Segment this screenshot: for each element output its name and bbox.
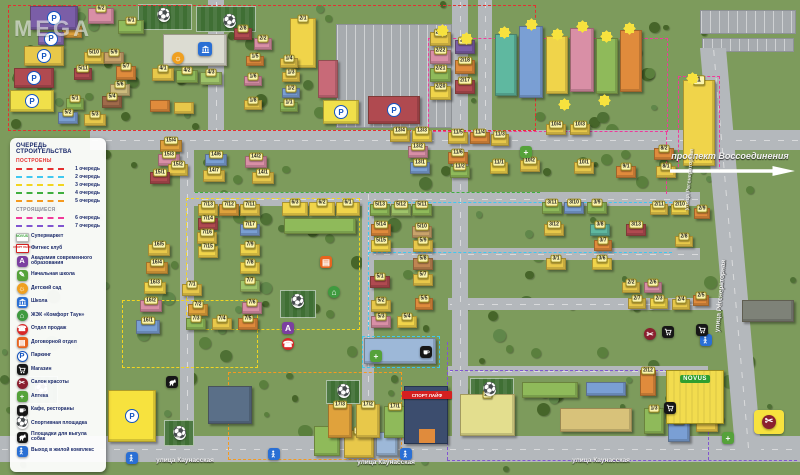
building-2-6: 2/6 [644, 282, 662, 293]
legend-phase-row: 7 очередь [16, 222, 100, 230]
building-label: 3/12 [547, 221, 561, 229]
building-5-2: 5/2 [58, 112, 78, 124]
parking-icon: P [17, 351, 28, 362]
building-label: 2/2 [626, 279, 637, 287]
tree [233, 175, 242, 184]
tree [262, 301, 268, 307]
building-7-3: 7/3 [186, 318, 206, 330]
pharmacy-icon: + [17, 391, 28, 402]
legend-amenity-label: Начальная школа [31, 272, 75, 278]
building-9-1: 9/1 [616, 166, 636, 178]
building-15-1: 15/1 [150, 172, 170, 184]
building-3-12: 3/12 [544, 224, 564, 236]
tree [525, 271, 533, 279]
exit-icon [126, 452, 138, 464]
building [742, 300, 794, 322]
tree [325, 15, 331, 21]
building-3-7: 3/7 [594, 240, 612, 251]
parking-icon: P [387, 103, 401, 117]
building-16-5: 16/5 [148, 244, 170, 256]
tree [259, 380, 268, 389]
novus-icon: NOVUS [16, 233, 29, 242]
academy-icon: А [17, 256, 28, 267]
building-5-3: 5/3 [371, 316, 391, 328]
building-label: 17/1 [388, 403, 402, 411]
legend-amenity-label: Магазин [31, 367, 52, 373]
building-label: 2/12 [641, 367, 655, 375]
building-3-9: 3/9 [587, 202, 607, 214]
building-label: 2/3 [654, 295, 665, 303]
building-label: 13/2 [411, 143, 425, 151]
building-label: 5/7 [121, 63, 132, 71]
legend-phases-constructing: 6 очередь7 очередь [16, 214, 100, 230]
legend-amenity-icon-cell [16, 405, 28, 416]
legend-phases-built: 1 очередь2 очередь3 очередь4 очередь5 оч… [16, 165, 100, 205]
building-label: 3/8 [595, 221, 606, 229]
building-label: 1/2 [286, 85, 297, 93]
building-5-8: 5/8 [413, 258, 433, 270]
building-5-3: 5/3 [84, 114, 106, 126]
kindergarten-icon: ☼ [172, 52, 184, 64]
building-11-5: 11/5 [448, 132, 468, 144]
starburst-badge [578, 22, 587, 31]
building-6-1: 6/1 [118, 20, 144, 34]
building-6-3: 6/3 [282, 202, 308, 216]
tree [85, 93, 93, 101]
building-label: 16/1 [141, 317, 155, 325]
tree [121, 112, 130, 121]
building-label: 4/3 [206, 69, 217, 77]
building-label: 8/1 [661, 163, 672, 171]
legend-amenity-row: ☎Отдел продаж [16, 324, 100, 335]
pharmacy-icon: + [520, 146, 532, 158]
parking-icon: P [125, 409, 139, 423]
legend-amenity-row: Кафе, рестораны [16, 405, 100, 416]
building-1-1: 1/1 [280, 102, 298, 112]
building-2-22: 2/22 [430, 50, 451, 64]
phase-line [16, 200, 64, 202]
legend-amenity-row: ✂Салон красоты [16, 378, 100, 389]
contract-icon: ▤ [320, 256, 332, 268]
building-label: 11/1 [492, 159, 505, 167]
building-17-1: 17/1 [384, 406, 406, 438]
building-label: 11/3 [493, 131, 506, 139]
building-label: 5/10 [415, 223, 429, 231]
building [586, 382, 626, 396]
building [284, 218, 356, 234]
building [150, 100, 170, 112]
building-label: 3/1 [551, 255, 562, 263]
building-label: 11/2 [453, 163, 466, 171]
building-label: 14/1 [256, 169, 270, 177]
building-2-20: 2/20 [430, 86, 451, 100]
shop-icon [662, 326, 674, 338]
legend-amenity-row: Площадки для выгула собак [16, 432, 100, 444]
street-label-kaunasska-3: улица Каунасская [556, 457, 646, 464]
building-label: 3/9 [592, 199, 603, 207]
building-label: 5/13 [373, 201, 387, 209]
building-label: 13/3 [415, 127, 429, 135]
building-label: 2/6 [648, 279, 659, 287]
building-label: 6/3 [290, 199, 301, 207]
street-label-kaunasska-2: улица Каунасская [341, 459, 431, 466]
legend-amenity-row: ☼Детский сад [16, 283, 100, 294]
building-label: 2/8 [238, 25, 249, 33]
tree [597, 347, 608, 358]
legend-amenity-icon-cell: NOVUS [16, 233, 28, 242]
building-3-10: 3/10 [564, 202, 584, 214]
legend-amenity-label: Отдел продаж [31, 326, 66, 332]
building-label: 7/11 [243, 201, 256, 209]
building [174, 102, 194, 114]
building-label: 2/4 [676, 296, 687, 304]
building-2-2: 2/2 [254, 38, 272, 50]
building [570, 28, 594, 92]
building-label: 7/13 [201, 201, 215, 209]
building-16-3: 16/3 [144, 282, 166, 294]
sales-office-icon: ☎ [17, 324, 28, 335]
building-6-1: 6/1 [336, 202, 360, 216]
legend-constructing-heading: СТРОЯЩИЕСЯ [16, 207, 100, 213]
sport-icon: ⚽ [174, 428, 186, 440]
school-icon [17, 297, 28, 308]
building [620, 30, 642, 92]
road-centerline [485, 2, 486, 130]
building-5-14: 5/14 [371, 224, 391, 236]
building-1-5: 1/5 [246, 56, 264, 66]
building-1-3: 1/3 [282, 72, 300, 82]
building-label: 11/4 [473, 129, 486, 137]
building-11-2: 11/2 [450, 166, 470, 178]
building-5-7: 5/7 [116, 66, 136, 80]
building-2-9: 2/9 [694, 208, 710, 219]
road [186, 192, 700, 206]
phase-line [16, 184, 64, 186]
building-14-7: 14/7 [203, 170, 225, 182]
building-2-2: 2/2 [622, 282, 640, 293]
sportlife-sign: СПОРТ ЛАЙФ [402, 391, 452, 399]
legend-amenity-icon-cell: ⚽ [16, 418, 28, 429]
tree [649, 22, 660, 33]
building-13-4: 13/4 [390, 130, 410, 142]
building-label: 16/2 [144, 297, 158, 305]
legend-amenity-icon-cell: P [16, 351, 28, 362]
building-label: 7/4 [217, 315, 228, 323]
building-label: 1/3 [649, 405, 660, 413]
building-10-3: 10/3 [570, 124, 590, 135]
building-label: 2/1 [298, 15, 309, 23]
road [478, 0, 492, 132]
building-3-11: 3/11 [542, 202, 562, 214]
building-label: 5/2 [63, 109, 74, 117]
building-11-4: 11/4 [470, 132, 490, 144]
building-13-2: 13/2 [408, 146, 428, 158]
building-label: 3/7 [598, 237, 609, 245]
starburst-badge [602, 32, 611, 41]
building-2-12: 2/12 [640, 370, 656, 396]
legend-amenities: NOVUSСупермаркетСПОРТ ЛАЙФФитнес клубААк… [16, 233, 100, 457]
building-label: 9/1 [621, 163, 632, 171]
building-1-6: 1/6 [244, 76, 262, 86]
tree [11, 119, 21, 129]
phase-label: 2 очередь [67, 174, 100, 180]
building-label: 2/17 [458, 77, 472, 85]
building-label: 15/4 [164, 137, 178, 145]
legend-amenity-row: PПаркинг [16, 351, 100, 362]
building-label: 5/4 [107, 93, 118, 101]
tree [2, 349, 8, 355]
tree [535, 112, 545, 122]
shop-icon [17, 364, 28, 375]
street-label-avenue: проспект Воссоединения [660, 151, 800, 161]
building-5-5: 5/5 [415, 298, 433, 310]
novus-sign: NOVUS [680, 375, 710, 383]
legend-amenity-icon-cell [16, 446, 28, 457]
tree [347, 346, 357, 356]
beauty2-icon: ✂ [754, 410, 784, 434]
starburst-badge [500, 28, 509, 37]
phase-label: 5 очередь [67, 198, 100, 204]
building-label: 5/3 [90, 111, 101, 119]
tree [506, 345, 513, 352]
building-10-2: 10/2 [520, 160, 540, 172]
building-11-3: 11/3 [491, 134, 509, 146]
tree [790, 277, 796, 283]
road-centerline [188, 199, 698, 200]
masterplan-map: 6/26/15/105/95/115/75/65/45/15/25/34/14/… [0, 0, 800, 475]
legend-amenity-label: Выход в жилой комплекс [31, 448, 94, 454]
legend-amenity-icon-cell: ✂ [16, 378, 28, 389]
building-label: 6/2 [96, 5, 107, 13]
building-label: 7/15 [201, 243, 215, 251]
building [208, 386, 252, 424]
building-5-1: 5/1 [370, 276, 390, 288]
sport-icon: ⚽ [224, 16, 236, 28]
legend-panel: ОЧЕРЕДЬ СТРОИТЕЛЬСТВА ПОСТРОЕНЫ 1 очеред… [10, 138, 106, 472]
building-label: 2/22 [434, 47, 448, 55]
building-label: 7/14 [201, 215, 215, 223]
building-5-13: 5/13 [370, 204, 390, 216]
building-5-12: 5/12 [391, 204, 411, 216]
building-1-2: 1/2 [282, 88, 300, 98]
building-7-6: 7/6 [242, 302, 262, 314]
exit-icon [268, 448, 280, 460]
building-label: 5/9 [418, 237, 429, 245]
legend-phase-row: 5 очередь [16, 197, 100, 205]
building-label: 1/5 [250, 53, 261, 61]
tree [663, 25, 669, 31]
building-7-15: 7/15 [198, 246, 218, 258]
legend-amenity-icon-cell: ✎ [16, 270, 28, 281]
building-label: 1/1 [284, 99, 295, 107]
legend-amenity-icon-cell: ☼ [16, 283, 28, 294]
phase-label: 1 очередь [67, 166, 100, 172]
building-label: 7/5 [243, 315, 254, 323]
sport-icon: ⚽ [158, 10, 170, 22]
building-label: 5/3 [376, 313, 387, 321]
building-2-7: 2/7 [628, 298, 646, 309]
building-5-4: 5/4 [102, 96, 122, 108]
building-label: 5/6 [115, 81, 126, 89]
starburst-badge [600, 96, 609, 105]
parking-icon: P [27, 71, 41, 85]
parking-building: P [368, 96, 420, 124]
building-5-4: 5/4 [397, 316, 417, 328]
legend-phase-row: 3 очередь [16, 181, 100, 189]
building-label: 2/11 [652, 201, 665, 209]
building-label: 15/2 [171, 161, 185, 169]
phase-label: 4 очередь [67, 190, 100, 196]
legend-phase-row: 4 очередь [16, 189, 100, 197]
building-label: 15/1 [153, 169, 167, 177]
parking-building: P [24, 46, 64, 66]
building-label: 5/2 [376, 297, 387, 305]
building-label: 1/3 [286, 69, 297, 77]
building-label: 14/6 [209, 151, 223, 159]
starburst-badge [553, 30, 562, 39]
legend-amenity-icon-cell: СПОРТ ЛАЙФ [16, 244, 28, 253]
building-5-11: 5/11 [74, 68, 92, 80]
building-7-5: 7/5 [238, 318, 258, 330]
building-1-3: 1/3 [644, 408, 664, 434]
building-label: 5/1 [375, 273, 386, 281]
building-2-21: 2/21 [430, 68, 451, 82]
building-label: 2/9 [697, 205, 708, 213]
legend-amenity-label: Аптека [31, 394, 48, 400]
building-5-15: 5/15 [371, 240, 391, 252]
tree [597, 112, 609, 124]
building-label: 13/1 [413, 159, 427, 167]
building-label: 10/3 [573, 121, 587, 129]
building-2-4: 2/4 [672, 299, 690, 310]
legend-amenity-row: Выход в жилой комплекс [16, 446, 100, 457]
building-1-9: 1/9 [460, 394, 515, 436]
building-label: 5/11 [415, 201, 428, 209]
sportlife-entrance [419, 429, 435, 443]
building-label: 5/5 [419, 295, 430, 303]
phase-line [16, 168, 64, 170]
tree [476, 211, 483, 218]
novus-supermarket-building: NOVUS [666, 370, 724, 424]
legend-amenity-row: Школа [16, 297, 100, 308]
building-7-7: 7/7 [240, 280, 260, 292]
beauty-salon-icon: ✂ [762, 415, 776, 429]
tree [292, 395, 298, 401]
legend-amenity-row: NOVUSСупермаркет [16, 233, 100, 242]
building-14-1: 14/1 [252, 172, 274, 184]
tree [645, 68, 656, 79]
building-label: 5/12 [394, 201, 408, 209]
building-2-17: 2/17 [455, 80, 475, 94]
sportlife-fitness-building: СПОРТ ЛАЙФ [404, 386, 448, 444]
legend-amenity-label: ЖЭК «Комфорт Таун» [31, 313, 84, 319]
building-label: 7/7 [245, 277, 256, 285]
legend-amenity-label: Фитнес клуб [31, 246, 62, 252]
building-7-17: 7/17 [240, 224, 260, 236]
building-label: 16/5 [152, 241, 166, 249]
building-label: 10/1 [577, 159, 591, 167]
parking-building: P [323, 100, 359, 124]
building [560, 408, 632, 432]
building-1-4: 1/4 [280, 58, 298, 68]
building-label: 5/15 [374, 237, 388, 245]
building-1-8: 1/8 [244, 100, 262, 110]
building-4-2: 4/2 [176, 70, 198, 83]
building-16-2: 16/2 [140, 300, 162, 312]
building-2-8: 2/8 [675, 236, 693, 247]
phase-label: 3 очередь [67, 182, 100, 188]
building-label: 1/4 [284, 55, 295, 63]
building-label: 11/5 [451, 129, 464, 137]
building-label: 3/10 [567, 199, 581, 207]
building [519, 26, 543, 98]
building-2-3: 2/3 [650, 298, 668, 309]
building-label: 2/2 [258, 35, 269, 43]
building-6-2: 6/2 [309, 202, 335, 216]
building-5-2: 5/2 [371, 300, 391, 312]
academy-icon: А [282, 322, 294, 334]
legend-amenity-label: Паркинг [31, 353, 51, 359]
parking-building: P [108, 390, 156, 442]
building-3-6: 3/6 [592, 258, 612, 270]
building [318, 60, 338, 98]
building-17-3: 17/3 [328, 404, 352, 438]
building-4-1: 4/1 [152, 68, 174, 81]
building-label: 7/1 [187, 281, 198, 289]
building-5-11: 5/11 [412, 204, 432, 216]
building-label: 7/9 [245, 241, 256, 249]
shop-icon [664, 402, 676, 414]
building-5-10: 5/10 [84, 52, 104, 64]
building-label: 5/8 [418, 255, 429, 263]
building-2-8: 2/8 [234, 28, 252, 40]
building-label: 2/7 [632, 295, 643, 303]
parking-lot [700, 10, 796, 34]
legend-amenity-icon-cell [16, 364, 28, 375]
dog-icon [166, 376, 178, 388]
building-10-1: 10/1 [574, 162, 594, 174]
building-label: 5/9 [109, 49, 120, 57]
tree [316, 5, 324, 13]
building-label: 5/11 [76, 65, 89, 73]
building-7-11: 7/11 [240, 204, 260, 216]
legend-phase-row: 6 очередь [16, 214, 100, 222]
building-17-2: 17/2 [356, 404, 380, 438]
parking-icon: P [37, 49, 51, 63]
sales-icon: ☎ [282, 338, 294, 350]
building-label: 5/10 [87, 49, 101, 57]
cafe-icon [420, 346, 432, 358]
legend-amenity-row: Магазин [16, 364, 100, 375]
legend-title: ОЧЕРЕДЬ СТРОИТЕЛЬСТВА [16, 143, 100, 155]
legend-amenity-label: Кафе, рестораны [31, 407, 74, 413]
building-3-13: 3/13 [626, 224, 646, 236]
starburst-badge [625, 24, 634, 33]
building-label: 13/4 [393, 127, 407, 135]
tree [543, 168, 551, 176]
legend-phase-row: 1 очередь [16, 165, 100, 173]
building-2-18: 2/18 [455, 60, 475, 74]
parking-icon: P [334, 105, 348, 119]
building-label: 1/6 [248, 73, 259, 81]
building-14-6: 14/6 [205, 154, 227, 166]
tree [636, 176, 648, 188]
legend-amenity-icon-cell: А [16, 256, 28, 267]
legend-amenity-label: Супермаркет [31, 234, 63, 240]
legend-phase-row: 2 очередь [16, 173, 100, 181]
exit-icon [17, 446, 28, 457]
parking-building: P [10, 90, 54, 112]
